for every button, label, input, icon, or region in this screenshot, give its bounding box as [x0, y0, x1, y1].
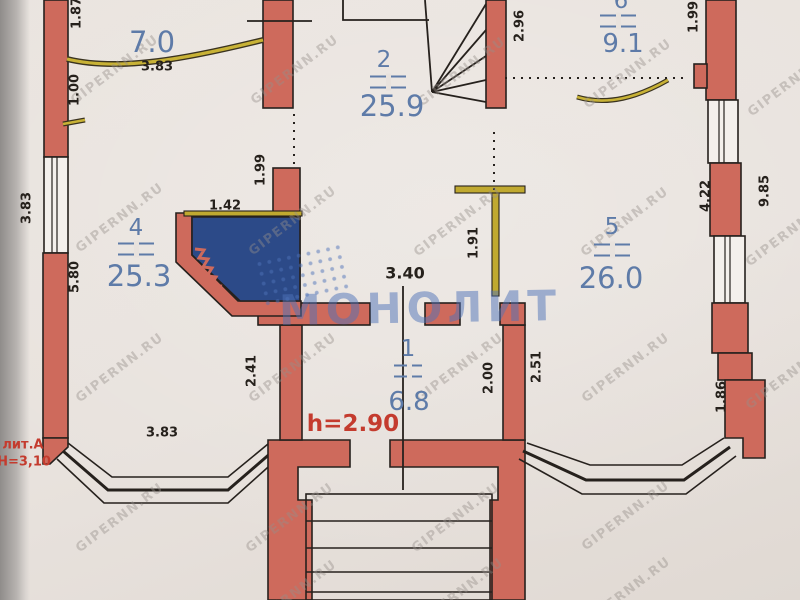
- dim-mid-340: 3.40: [385, 264, 424, 283]
- dim-top-right-296: 2.96: [513, 10, 528, 42]
- bay-window-right: [519, 438, 736, 494]
- bay-window-left: [57, 443, 276, 503]
- left-outer-wall: [43, 0, 68, 464]
- dim-left-199: 1.99: [254, 154, 269, 186]
- room4-divider: [118, 243, 154, 256]
- dim-left-580: 5.80: [68, 261, 83, 293]
- dim-room1-200: 2.00: [482, 362, 497, 394]
- dim-right-186: 1.86: [715, 381, 730, 413]
- room2-number: 2: [377, 47, 392, 73]
- room4-number: 4: [129, 215, 144, 241]
- dim-mid-191: 1.91: [467, 227, 482, 259]
- dim-right-985: 9.85: [758, 175, 773, 207]
- building-height-note: H=3,10: [0, 455, 51, 470]
- dim-top-right-199: 1.99: [687, 1, 702, 33]
- room5-area: 26.0: [579, 261, 644, 295]
- dim-top-383: 3.83: [141, 60, 173, 75]
- door-arc-room6: [577, 80, 668, 101]
- room5-number: 5: [605, 214, 620, 240]
- dim-left-100: 1.00: [68, 74, 83, 106]
- room6-divider: [600, 15, 636, 28]
- dim-right-422: 4.22: [699, 180, 714, 212]
- room-balcony-area: 7.0: [129, 25, 175, 59]
- room6-area: 9.1: [602, 29, 643, 59]
- dim-bottom-383: 3.83: [146, 426, 178, 441]
- room2-divider: [370, 76, 406, 89]
- room4-area: 25.3: [107, 259, 172, 293]
- dim-stair-142: 1.42: [209, 199, 241, 214]
- room1-divider: [394, 365, 422, 378]
- dim-room5-251: 2.51: [530, 351, 545, 383]
- room2-area: 25.9: [360, 89, 425, 123]
- room1-number: 1: [401, 336, 416, 362]
- room1-height-note: h=2.90: [307, 411, 399, 437]
- dim-left-187: 1.87: [70, 0, 85, 29]
- room5-divider: [594, 244, 630, 257]
- liter-note: лит.А: [2, 438, 43, 453]
- entrance-steps: [306, 494, 492, 600]
- dim-left-241: 2.41: [245, 355, 260, 387]
- right-outer-wall: [694, 0, 765, 458]
- floorplan-photo: 7.0 2 25.9 6 9.1 4 25.3 5 26.0 1 6.8 h=2…: [0, 0, 800, 600]
- winder-stair: [176, 213, 301, 316]
- dim-left-outer-383: 3.83: [20, 192, 35, 224]
